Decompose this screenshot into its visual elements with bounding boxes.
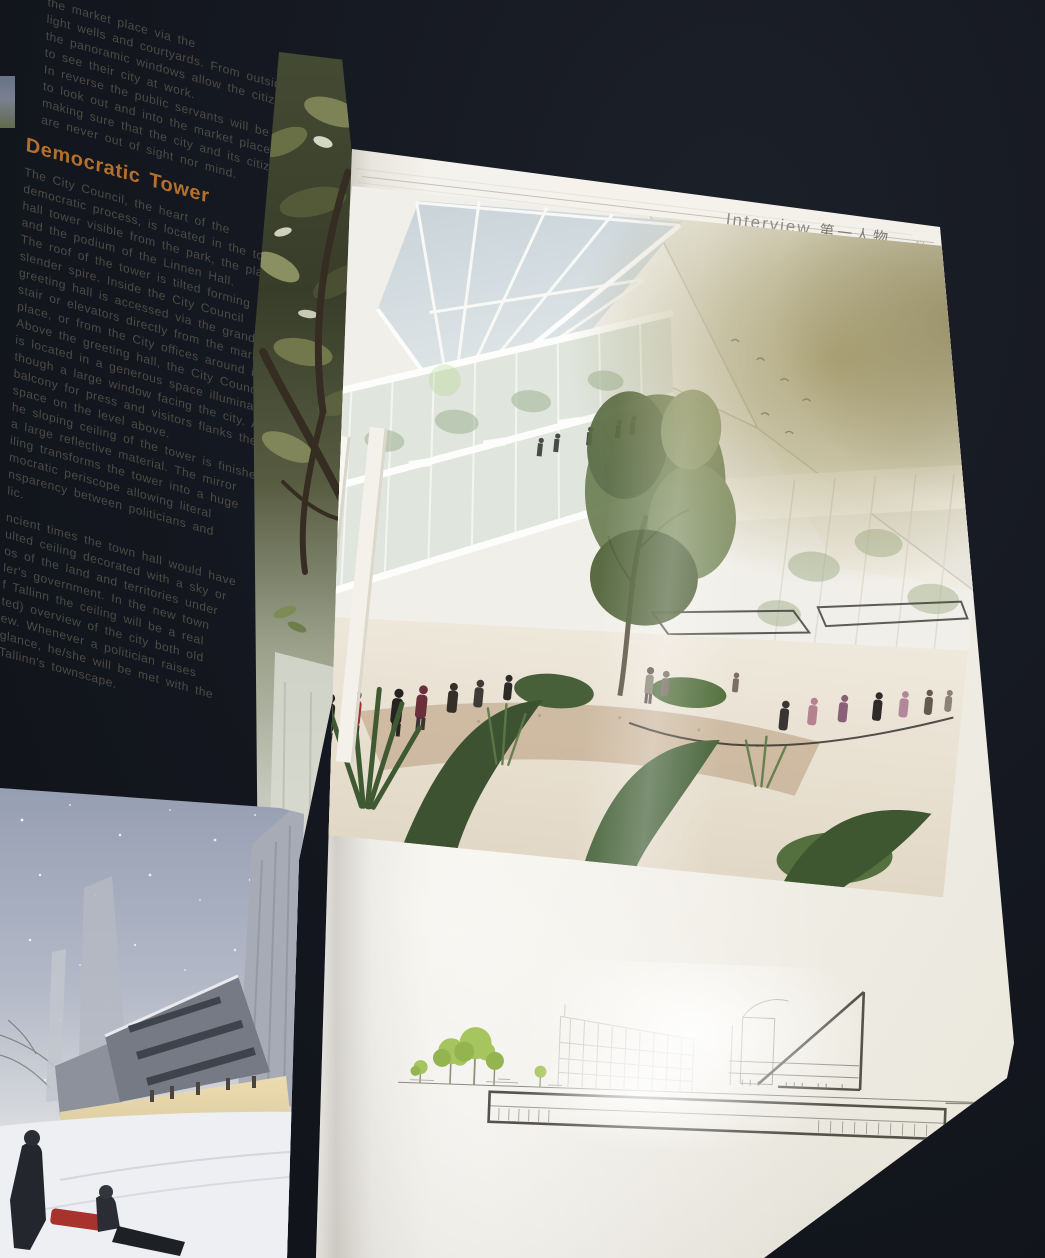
section-drawing-figure (387, 952, 994, 1173)
atrium-rendering-photo (287, 186, 1009, 897)
atrium-rendering-image (287, 186, 1009, 897)
magazine-photo-scene: the market place via the light wells and… (0, 0, 1045, 1258)
snow-exterior-photo (0, 780, 304, 1258)
left-edge-photo-sliver (0, 76, 15, 128)
section-drawing-image (387, 952, 994, 1173)
snow-exterior-image (0, 780, 304, 1258)
